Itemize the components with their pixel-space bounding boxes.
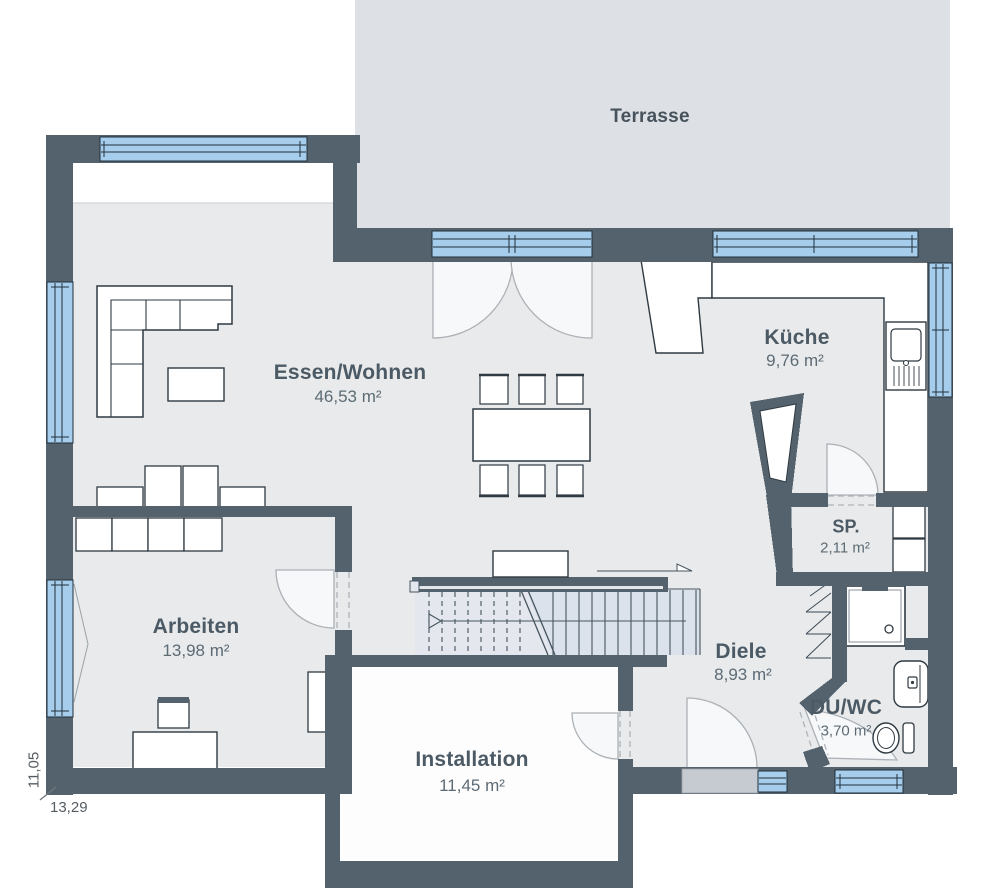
shower [845,584,905,646]
bottom-window-small [758,771,787,792]
toilet [873,723,914,753]
desk-chair [158,697,189,728]
terrace-area [355,0,950,228]
dining-table [473,409,590,461]
left-window-lower [47,580,73,717]
bay-window [100,137,307,161]
terrace-door-glazing [432,231,592,257]
washbasin [894,661,928,707]
bottom-exterior-wall [46,768,352,794]
dimension-height: 11,05 [26,752,43,788]
wall-shelves [76,518,222,551]
kitchen-sink [886,322,926,390]
left-window-upper [47,282,73,443]
floor-plan: Terrasse Essen/Wohnen 46,53 m² Küche 9,7… [0,0,1000,890]
top-window [713,231,918,257]
stair-stringer [412,577,668,592]
floor-plan-drawing [0,0,1000,890]
bay-window-sill [73,163,335,203]
pantry-shelves [893,504,925,572]
installation-floor [340,667,618,860]
dining-set [473,375,590,496]
coffee-table [168,368,224,401]
bottom-window [835,770,903,793]
dimension-width: 13,29 [50,799,88,816]
stair-sideboard [493,551,568,577]
entrance-door-slab [682,769,758,793]
